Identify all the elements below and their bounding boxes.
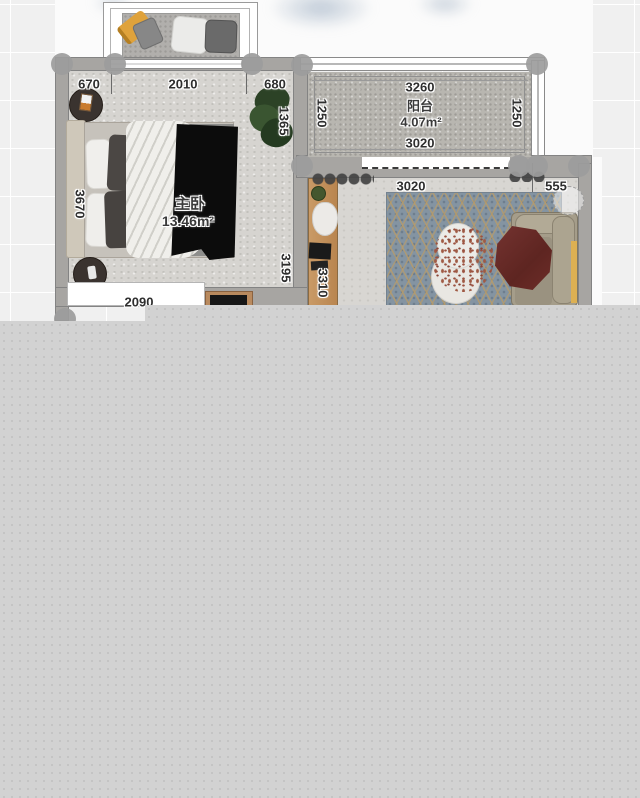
floorplan-canvas: 670 2010 680 1365 3670 3195 2090 主卧 13.4… [0,0,640,798]
dimension-label-balcony-left[interactable]: 1250 [315,99,330,128]
wall-joint-handle[interactable] [104,53,126,75]
dimension-label-balcony-top[interactable]: 3260 [406,80,435,95]
room-label-balcony[interactable]: 阳台 [407,96,433,115]
dimension-label-bedroom-top-mid[interactable]: 2010 [169,77,198,92]
wall-bedroom-right[interactable] [293,57,308,307]
dimension-label-living-top[interactable]: 3020 [397,179,426,194]
wall-joint-handle[interactable] [568,155,590,177]
nightstand-decor [79,93,93,112]
wall-joint-handle[interactable] [291,54,313,76]
dimension-label-bedroom-right-lower[interactable]: 3195 [279,254,294,283]
room-area-balcony[interactable]: 4.07m² [400,115,441,130]
exterior-mask-right-of-balcony [544,0,593,163]
pillow[interactable] [170,15,210,55]
window-balcony-top[interactable] [300,57,545,71]
dimension-label-bedroom-right-upper[interactable]: 1365 [277,107,292,136]
wall-living-right[interactable] [578,163,592,307]
dimension-label-bedroom-top-left[interactable]: 670 [78,77,100,92]
wall-joint-handle[interactable] [241,53,263,75]
nightstand-decor [87,266,97,280]
wall-joint-handle[interactable] [51,53,73,75]
curtain[interactable] [312,172,374,185]
dimension-label-balcony-right[interactable]: 1250 [510,99,525,128]
dimension-label-living-top-right[interactable]: 555 [545,179,567,194]
dimension-label-bedroom-left[interactable]: 3670 [73,190,88,219]
sliding-door-dashes [362,167,510,169]
dimension-label-living-left[interactable]: 3310 [316,269,331,298]
window-balcony-right[interactable] [531,60,545,163]
loading-overlay [0,321,640,798]
dresser-top [210,295,247,305]
wall-joint-handle[interactable] [526,53,548,75]
laptop[interactable] [309,242,332,259]
room-area-bedroom[interactable]: 13.46m² [162,213,214,229]
yellow-cushion[interactable] [571,241,577,303]
dimension-label-bedroom-top-right[interactable]: 680 [264,77,286,92]
window-bedroom-top[interactable] [110,59,243,69]
wall-joint-handle[interactable] [291,155,313,177]
dimension-label-balcony-bottom[interactable]: 3020 [406,136,435,151]
room-label-bedroom[interactable]: 主卧 [175,193,205,214]
pillow[interactable] [204,19,237,53]
dried-flowers [432,226,494,292]
wall-joint-handle[interactable] [526,155,548,177]
desk-chair[interactable] [312,202,338,236]
dimension-tick [111,72,112,94]
desk-plant[interactable] [311,186,326,201]
dimension-tick [246,72,247,94]
